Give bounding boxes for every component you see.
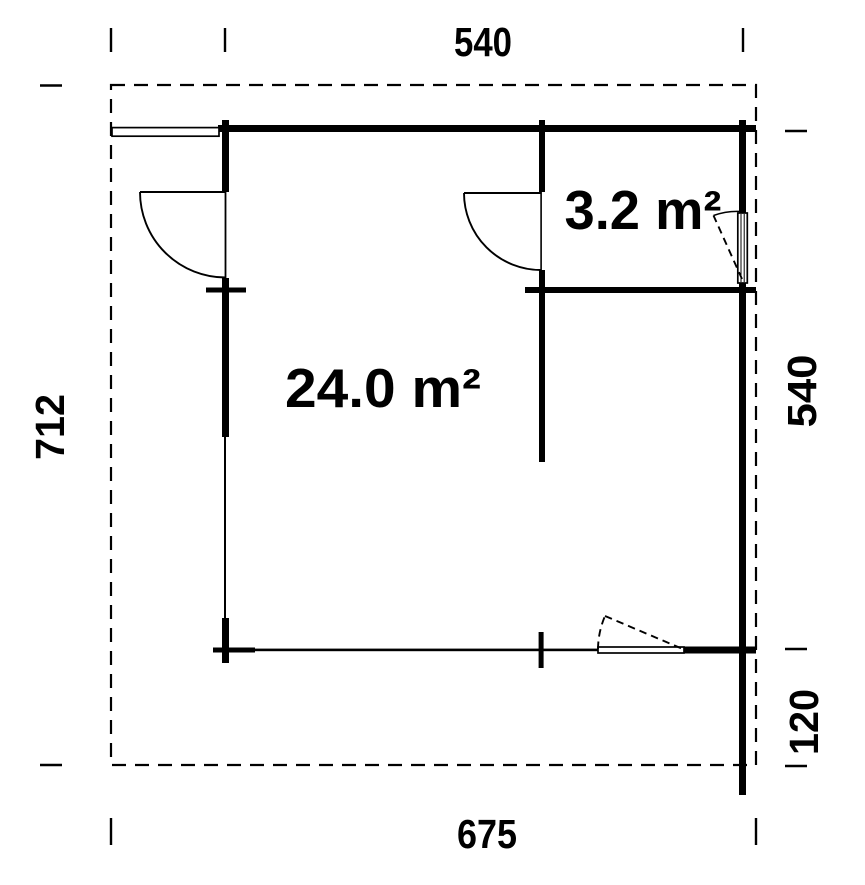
dimension-top: 540: [454, 19, 512, 65]
left-wall-thin-section: [224, 437, 226, 618]
dimension-ticks: [40, 28, 807, 845]
left-wall-middle: [222, 278, 229, 437]
side-room-area-label: 3.2 m²: [565, 179, 722, 241]
left-wall-lower: [222, 618, 229, 663]
top-wall: [218, 125, 756, 132]
side-room-bottom-wall: [525, 287, 756, 293]
dimension-right-upper: 540: [779, 355, 825, 428]
dimension-left: 712: [27, 394, 73, 460]
dimension-right-lower: 120: [781, 689, 827, 755]
right-wall-lower: [739, 283, 746, 795]
left-door-swing-arc: [140, 192, 226, 278]
left-wall-upper: [222, 120, 229, 192]
right-wall-upper: [739, 120, 746, 213]
partition-wall-upper: [539, 120, 545, 192]
dimension-bottom: 675: [457, 811, 517, 857]
bottom-wall-thick: [684, 647, 756, 654]
main-room-area-label: 24.0 m²: [285, 357, 481, 419]
top-left-panel: [112, 128, 219, 137]
left-door-frame-line: [225, 192, 227, 278]
left-wall-log-cross: [206, 288, 246, 293]
floor-plan-page: 540 712 540 120 675 24.0 m² 3.2 m²: [0, 0, 865, 885]
doors: [140, 192, 742, 653]
partition-door-frame-line: [540, 192, 542, 270]
floor-plan-drawing: 540 712 540 120 675 24.0 m² 3.2 m²: [0, 0, 865, 885]
side-room-door-swing-arc: [464, 193, 541, 270]
partition-wall-lower: [539, 270, 545, 462]
labels: 540 712 540 120 675 24.0 m² 3.2 m²: [27, 19, 827, 857]
bottom-door-dashed-leaf: [605, 616, 684, 650]
bottom-wall-log-cross: [539, 632, 544, 668]
bottom-door-leaf: [598, 647, 684, 653]
bottom-door-dashed-arc: [598, 616, 605, 649]
